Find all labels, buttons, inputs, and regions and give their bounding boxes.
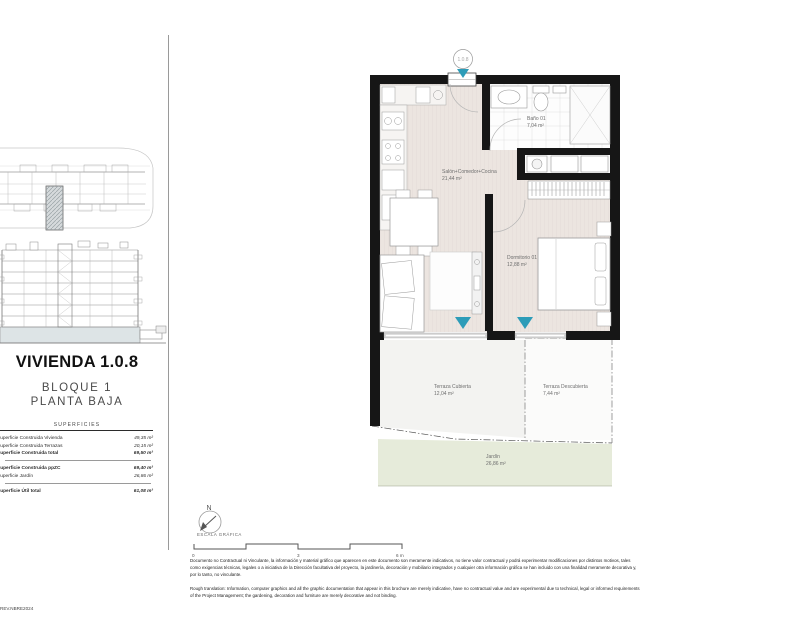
bed bbox=[538, 222, 611, 326]
room-area: 21,44 m² bbox=[442, 176, 462, 182]
wardrobe bbox=[528, 181, 610, 199]
scale-label: ESCALA GRÁFICA bbox=[197, 532, 242, 537]
highlighted-unit-marker bbox=[46, 186, 63, 230]
disclaimer-en: Rough translation: Information, computer… bbox=[190, 586, 642, 600]
surfaces-table: Superficie Construida Vivienda 49,35 m² … bbox=[0, 435, 153, 495]
room-area: 12,88 m² bbox=[507, 262, 527, 268]
dining-table bbox=[390, 190, 438, 256]
subtitle-block: BLOQUE 1 bbox=[0, 382, 157, 396]
room-area: 26,86 m² bbox=[486, 461, 506, 467]
table-row: Superficie Jardín 26,86 m² bbox=[0, 473, 153, 480]
room-area: 12,04 m² bbox=[434, 391, 454, 397]
room-area: 7,44 m² bbox=[543, 391, 560, 397]
rug bbox=[430, 252, 476, 310]
room-label: Salón+Comedor+Cocina bbox=[442, 169, 497, 175]
surfaces-header: SUPERFICIES bbox=[0, 422, 157, 428]
table-row: Superficie Construida Vivienda 49,35 m² bbox=[0, 435, 153, 442]
floor-plan: 1.0.8 bbox=[352, 40, 632, 500]
surfaces-rule bbox=[0, 430, 153, 431]
room-label: Dormitorio 01 bbox=[507, 255, 537, 261]
room-area: 7,04 m² bbox=[527, 123, 544, 129]
scale-block: N ESCALA GRÁFICA 0 3 6 m bbox=[185, 498, 415, 563]
building-section-thumbnail bbox=[0, 236, 172, 352]
table-row: Superficie Construida Terrazas 20,15 m² bbox=[0, 443, 153, 450]
panel-divider bbox=[168, 35, 169, 550]
room-label: Baño 01 bbox=[527, 116, 546, 122]
windows bbox=[384, 333, 566, 338]
table-row-total: Superficie Útil total 61,08 m² bbox=[0, 488, 153, 495]
room-label: Terraza Descubierta bbox=[543, 384, 588, 390]
plan-sheet: VIVIENDA 1.0.8 BLOQUE 1 PLANTA BAJA SUPE… bbox=[0, 0, 800, 640]
north-arrow-icon: N bbox=[199, 505, 221, 533]
room-label: Jardín bbox=[486, 454, 500, 460]
table-row-total: Superficie Construida total 69,50 m² bbox=[0, 450, 153, 457]
laundry-area bbox=[527, 156, 608, 172]
scale-bar bbox=[194, 544, 402, 549]
subtitle-floor: PLANTA BAJA bbox=[0, 396, 157, 410]
table-row: Superficie Construida ppZC 69,40 m² bbox=[0, 465, 153, 472]
revision-stamp: REV.NBRE2024 bbox=[0, 606, 33, 611]
title-block: VIVIENDA 1.0.8 BLOQUE 1 PLANTA BAJA SUPE… bbox=[0, 352, 157, 495]
page-title: VIVIENDA 1.0.8 bbox=[0, 352, 155, 372]
room-label: Terraza Cubierta bbox=[434, 384, 471, 390]
tv-console bbox=[472, 252, 482, 314]
site-plan-thumbnail bbox=[0, 130, 168, 248]
disclaimer-block: Documento no Contractual ni Vinculante, … bbox=[190, 558, 642, 608]
sofa bbox=[380, 255, 424, 332]
disclaimer-es: Documento no Contractual ni Vinculante, … bbox=[190, 558, 642, 578]
svg-text:1.0.8: 1.0.8 bbox=[457, 57, 468, 63]
